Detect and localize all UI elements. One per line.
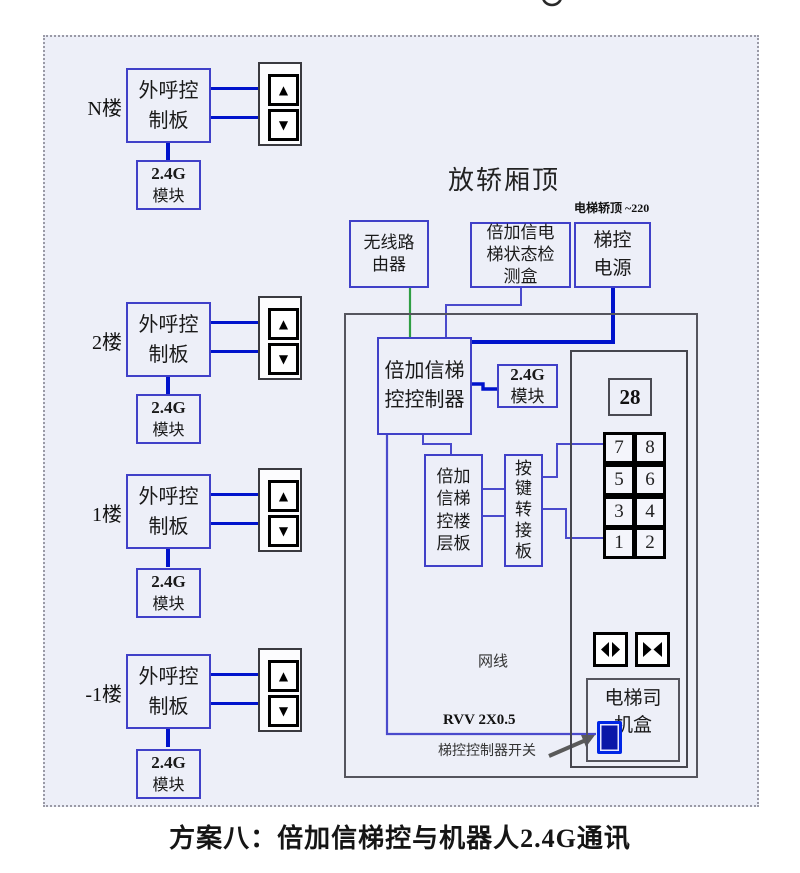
down-button: ▼ [268, 515, 299, 547]
module-2-4g: 2.4G 模块 [136, 749, 201, 799]
call-board: 外呼控 制板 [126, 302, 211, 377]
module-line: 模块 [152, 420, 184, 442]
hall-button-panel: ▲ ▼ [258, 296, 302, 380]
up-button: ▲ [268, 308, 299, 340]
up-button: ▲ [268, 660, 299, 692]
hall-button-panel: ▲ ▼ [258, 62, 302, 146]
elevator-status-detector-box: 倍加信电 梯状态检 测盒 [470, 222, 571, 288]
detector-line: 梯状态检 [487, 244, 555, 266]
call-board: 外呼控 制板 [126, 68, 211, 143]
power-line: 梯控 [593, 227, 631, 255]
wire-board-to-up [211, 87, 258, 90]
door-close-button [635, 632, 670, 667]
switch-annotation-label: 梯控控制器开关 [438, 740, 536, 760]
key-adapter-line: 键 [515, 479, 532, 500]
module-2-4g: 2.4G 模块 [136, 160, 201, 210]
floor-board-line: 倍加 [437, 466, 471, 488]
detector-line: 倍加信电 [487, 222, 555, 244]
floor-unit-n: N楼 外呼控 制板 ▲ ▼ 2.4G 模块 [78, 62, 310, 214]
key-adapter-board-box: 按 键 转 接 板 [504, 454, 543, 567]
car-button-2: 2 [634, 527, 666, 559]
car-button-label: 4 [645, 501, 655, 523]
key-adapter-line: 板 [515, 542, 532, 563]
call-board-line: 外呼控 [139, 482, 199, 512]
controller-line: 控控制器 [385, 386, 465, 415]
module-line: 模块 [152, 186, 184, 208]
wire-board-to-up [211, 673, 258, 676]
module-line: 2.4G [151, 571, 185, 594]
key-adapter-line: 转 [515, 500, 532, 521]
floor-board-line: 信梯 [437, 488, 471, 510]
floor-board-line: 层板 [437, 533, 471, 555]
car-button-6: 6 [634, 464, 666, 496]
floor-unit-2: 2楼 外呼控 制板 ▲ ▼ 2.4G 模块 [78, 296, 310, 448]
floor-board-line: 控楼 [437, 511, 471, 533]
clipped-text-fragment [543, 0, 561, 5]
car-button-8: 8 [634, 432, 666, 464]
call-board-line: 制板 [149, 692, 189, 722]
door-close-icon [642, 641, 663, 658]
floor-display-value: 28 [620, 385, 641, 410]
power-supply-note: 电梯轿顶 ~220 [574, 199, 649, 216]
car-button-label: 7 [614, 437, 624, 459]
call-board-line: 制板 [149, 106, 189, 136]
car-button-7: 7 [603, 432, 635, 464]
car-button-4: 4 [634, 496, 666, 528]
car-button-3: 3 [603, 496, 635, 528]
elevator-control-power-box: 梯控 电源 [574, 222, 651, 288]
hall-button-panel: ▲ ▼ [258, 648, 302, 732]
wireless-router-box: 无线路 由器 [349, 220, 429, 288]
network-cable-label: 网线 [478, 650, 508, 671]
floor-display: 28 [608, 378, 652, 416]
hall-button-panel: ▲ ▼ [258, 468, 302, 552]
call-board-line: 制板 [149, 340, 189, 370]
up-arrow-icon: ▲ [279, 489, 288, 503]
car-button-label: 3 [614, 501, 624, 523]
module-line: 模块 [152, 775, 184, 797]
key-adapter-line: 按 [515, 459, 532, 480]
wire-board-to-module [166, 143, 170, 161]
wire-board-to-module [166, 729, 170, 747]
down-arrow-icon: ▼ [279, 524, 288, 538]
wire-board-to-down [211, 350, 258, 353]
car-button-label: 8 [645, 437, 655, 459]
module-2-4g: 2.4G 模块 [136, 394, 201, 444]
door-open-icon [600, 641, 621, 658]
floor-relay-board-box: 倍加 信梯 控楼 层板 [424, 454, 483, 567]
down-arrow-icon: ▼ [279, 352, 288, 366]
call-board-line: 外呼控 [139, 76, 199, 106]
controller-switch [597, 721, 622, 754]
car-button-label: 2 [645, 532, 655, 554]
floor-label: -1楼 [78, 678, 122, 707]
car-button-label: 1 [614, 532, 624, 554]
module-2-4g: 2.4G 模块 [136, 568, 201, 618]
elevator-controller-box: 倍加信梯 控控制器 [377, 337, 472, 435]
controller-module-2-4g: 2.4G 模块 [497, 364, 558, 408]
car-button-label: 5 [614, 469, 624, 491]
down-arrow-icon: ▼ [279, 118, 288, 132]
floor-label: 1楼 [78, 498, 122, 527]
diagram-caption: 方案八：倍加信梯控与机器人2.4G通讯 [0, 818, 800, 855]
call-board: 外呼控 制板 [126, 474, 211, 549]
wire-board-to-down [211, 702, 258, 705]
wire-board-to-module [166, 549, 170, 567]
up-button: ▲ [268, 480, 299, 512]
floor-unit-minus1: -1楼 外呼控 制板 ▲ ▼ 2.4G 模块 [78, 648, 310, 800]
module-line: 2.4G [151, 752, 185, 775]
wire-board-to-up [211, 321, 258, 324]
up-arrow-icon: ▲ [279, 317, 288, 331]
router-line: 无线路 [364, 232, 415, 254]
floor-label: N楼 [78, 92, 122, 121]
wire-board-to-down [211, 522, 258, 525]
door-open-button [593, 632, 628, 667]
down-button: ▼ [268, 343, 299, 375]
car-button-label: 6 [645, 469, 655, 491]
module-line: 2.4G [151, 163, 185, 186]
up-arrow-icon: ▲ [279, 83, 288, 97]
down-button: ▼ [268, 109, 299, 141]
wire-board-to-up [211, 493, 258, 496]
driver-box-line: 电梯司 [588, 686, 678, 713]
power-line: 电源 [593, 255, 631, 283]
up-arrow-icon: ▲ [279, 669, 288, 683]
floor-unit-1: 1楼 外呼控 制板 ▲ ▼ 2.4G 模块 [78, 468, 310, 620]
call-board: 外呼控 制板 [126, 654, 211, 729]
car-button-1: 1 [603, 527, 635, 559]
car-button-5: 5 [603, 464, 635, 496]
detector-line: 测盒 [504, 266, 538, 288]
module-line: 2.4G [151, 397, 185, 420]
router-line: 由器 [372, 254, 406, 276]
down-arrow-icon: ▼ [279, 704, 288, 718]
car-top-title: 放轿厢顶 [448, 160, 560, 197]
call-board-line: 外呼控 [139, 662, 199, 692]
floor-label: 2楼 [78, 326, 122, 355]
module-line: 模块 [152, 594, 184, 616]
module-line: 模块 [511, 386, 545, 408]
call-board-line: 制板 [149, 512, 189, 542]
wire-board-to-down [211, 116, 258, 119]
call-board-line: 外呼控 [139, 310, 199, 340]
key-adapter-line: 接 [515, 521, 532, 542]
rvv-cable-label: RVV 2X0.5 [443, 712, 516, 729]
down-button: ▼ [268, 695, 299, 727]
controller-line: 倍加信梯 [385, 357, 465, 386]
up-button: ▲ [268, 74, 299, 106]
wire-board-to-module [166, 377, 170, 395]
module-line: 2.4G [510, 364, 544, 386]
diagram-page: N楼 外呼控 制板 ▲ ▼ 2.4G 模块 2楼 外呼控 制板 ▲ ▼ [0, 0, 800, 873]
